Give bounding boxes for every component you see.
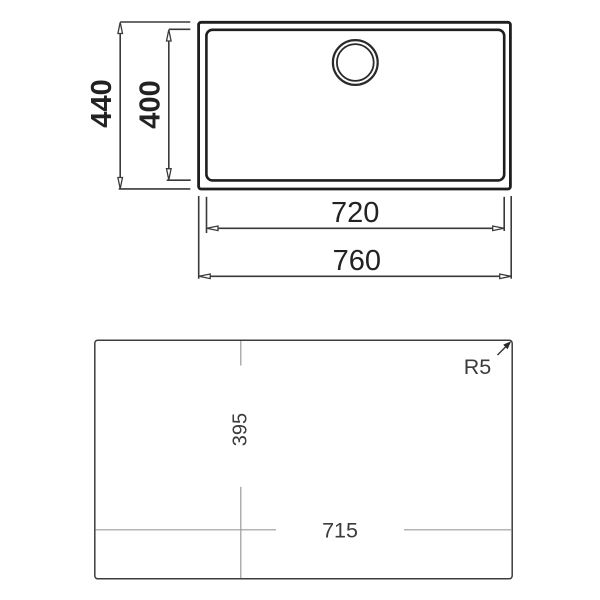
svg-text:720: 720 [331,197,379,229]
svg-text:715: 715 [322,518,358,542]
svg-text:400: 400 [135,80,167,128]
svg-text:R5: R5 [464,355,492,379]
svg-text:395: 395 [230,413,252,446]
svg-text:440: 440 [86,79,118,127]
svg-text:760: 760 [333,245,381,277]
